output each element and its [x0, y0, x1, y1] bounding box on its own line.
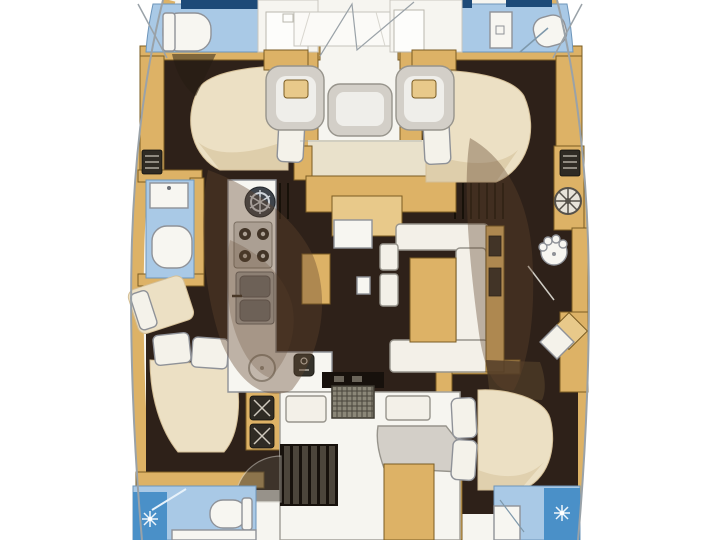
sofa-bottom — [390, 340, 488, 372]
pillow — [451, 439, 478, 481]
dinette-table — [410, 258, 456, 342]
floor-hatch — [357, 277, 370, 294]
port-forward-toilet-tank — [163, 13, 175, 51]
deck-seat-left — [266, 66, 324, 130]
starboard-aft-bed — [451, 390, 553, 490]
deck-center-console — [328, 84, 392, 136]
port-aft-head — [133, 486, 256, 540]
cockpit-table — [384, 464, 434, 540]
saloon-console-hatch — [334, 220, 372, 248]
deck-grate — [332, 386, 374, 418]
faucet-dot — [167, 186, 171, 190]
cockpit-seat-right — [386, 396, 430, 420]
door-handle — [352, 376, 362, 382]
starboard-side-wall — [572, 228, 588, 316]
port-side-locker-icon — [142, 150, 162, 174]
cockpit-seat-left — [286, 396, 326, 422]
port-mid-toilet — [152, 226, 192, 268]
port-aft-toilet-tank — [242, 498, 252, 530]
port-aft-toilet — [210, 500, 246, 528]
pillow — [451, 397, 477, 438]
shower-spray-icon — [142, 511, 158, 527]
coachroof-band — [308, 140, 440, 180]
steering-wheel-icon — [555, 188, 581, 214]
door-handle — [334, 376, 344, 382]
sofa-seat-left-1 — [380, 244, 398, 270]
catamaran-floor-plan — [0, 0, 720, 540]
head-door-panel — [494, 506, 520, 540]
sofa-seat-left-2 — [380, 274, 398, 306]
port-companionway-stairs — [280, 444, 338, 506]
starboard-forward-shower-panel — [394, 10, 424, 52]
floor-plan-image — [0, 0, 720, 540]
pillow — [153, 332, 192, 366]
starboard-aft-head — [494, 486, 580, 540]
starboard-forward-hatch-bar-2 — [506, 0, 552, 7]
shower-spray-icon — [554, 505, 570, 521]
starboard-forward-sink-panel — [490, 12, 512, 48]
port-forward-hatch-bar — [181, 0, 258, 9]
louver-icon — [560, 150, 580, 176]
port-aft-sink-counter — [172, 530, 256, 540]
deck-seat-right — [396, 66, 454, 130]
